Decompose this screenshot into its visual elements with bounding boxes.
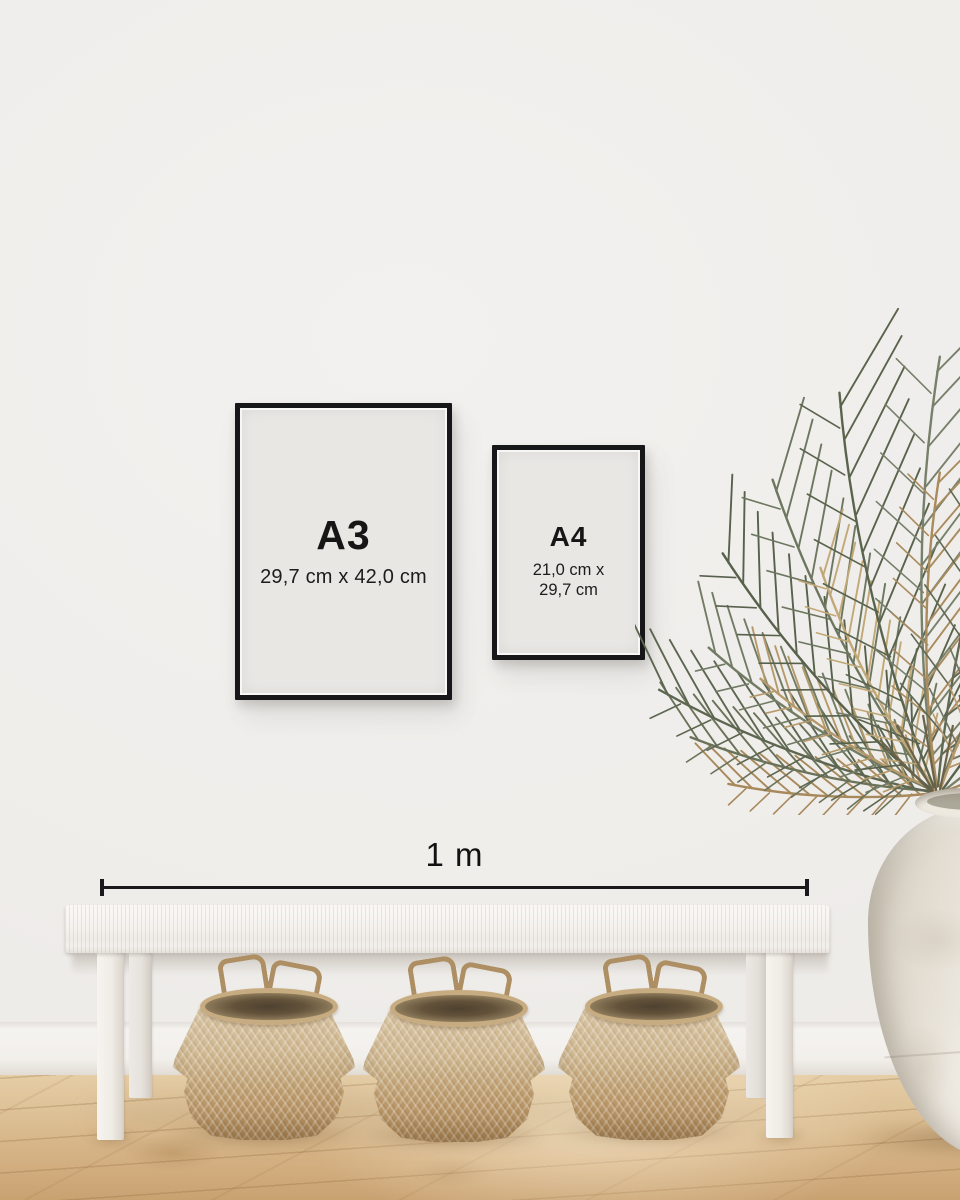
- bench-leg-back-left: [129, 950, 152, 1098]
- frame-size-guide-scene: A3 29,7 cm x 42,0 cm A4 21,0 cm x 29,7 c…: [0, 0, 960, 1200]
- a4-text-block: A4 21,0 cm x 29,7 cm: [533, 523, 605, 600]
- a4-size-dimensions-line2: 29,7 cm: [533, 580, 605, 600]
- woven-basket-right: [558, 956, 740, 1144]
- a4-picture-frame: A4 21,0 cm x 29,7 cm: [492, 445, 645, 660]
- scale-bar-line: [102, 886, 807, 889]
- bench-leg-front-left: [97, 950, 124, 1140]
- scale-bar-right-tick: [805, 879, 809, 896]
- bench-seat: [65, 905, 830, 953]
- bench-leg-back-right: [746, 950, 768, 1098]
- palm-fronds: [635, 295, 960, 815]
- dried-palm-plant: [635, 295, 960, 815]
- a4-size-label: A4: [533, 523, 605, 551]
- a4-size-dimensions: 21,0 cm x 29,7 cm: [533, 560, 605, 600]
- a3-frame-paper: A3 29,7 cm x 42,0 cm: [240, 408, 447, 695]
- bench-leg-front-right: [766, 950, 793, 1138]
- floor-vase: [860, 786, 960, 1166]
- woven-basket-middle: [363, 958, 545, 1146]
- a3-size-dimensions: 29,7 cm x 42,0 cm: [260, 566, 427, 589]
- a4-size-dimensions-line1: 21,0 cm x: [533, 560, 605, 580]
- basket-rim: [585, 988, 722, 1025]
- a3-size-label: A3: [316, 515, 370, 556]
- vase-opening: [927, 793, 960, 810]
- basket-rim: [200, 988, 337, 1025]
- scale-bar-left-tick: [100, 879, 104, 896]
- a4-frame-paper: A4 21,0 cm x 29,7 cm: [497, 450, 640, 655]
- vase-rim: [915, 788, 960, 818]
- basket-rim: [390, 990, 527, 1027]
- vase-body: [868, 806, 960, 1158]
- scale-bar-label: 1 m: [102, 836, 807, 874]
- woven-basket-left: [173, 956, 355, 1144]
- a3-picture-frame: A3 29,7 cm x 42,0 cm: [235, 403, 452, 700]
